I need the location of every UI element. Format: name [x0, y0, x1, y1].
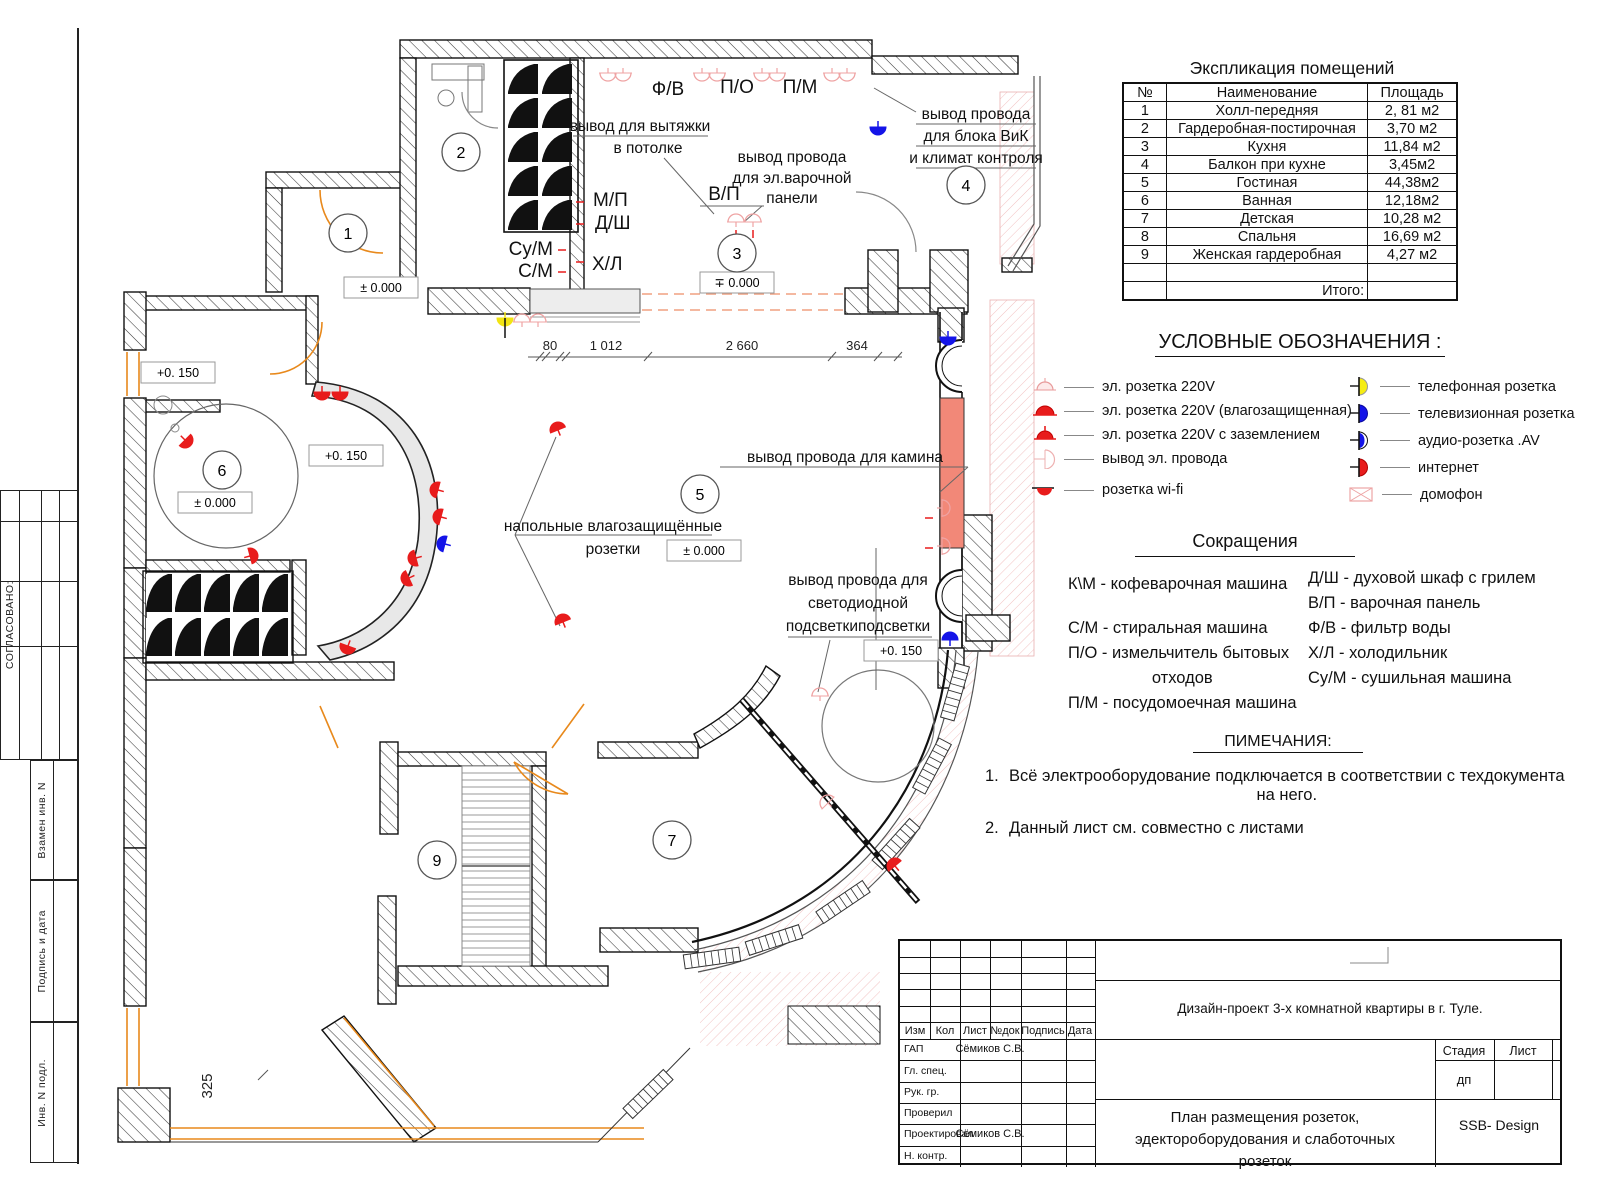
elevation-value: +0. 150 — [325, 449, 367, 463]
abbreviations: Сокращения К\М - кофеварочная машина С/М… — [1040, 531, 1580, 557]
table-row: 2Гардеробная-постирочная3,70 м2 — [1123, 120, 1457, 138]
label-mp: М/П — [593, 190, 628, 211]
label-po: П/О — [720, 77, 754, 98]
annotation-led: подсветкиподсветки — [786, 618, 930, 635]
socket-220v-icon — [1032, 377, 1058, 397]
stamp-label: Подпись и дата — [36, 910, 48, 993]
room-schedule-table: № Наименование Площадь 1Холл-передняя2, … — [1122, 82, 1458, 301]
label-hl: Х/Л — [592, 254, 622, 275]
stamp-cell: Подпись и дата — [30, 880, 78, 1022]
table-row: 5Гостиная44,38м2 — [1123, 174, 1457, 192]
dim-325: 325 — [199, 1073, 216, 1098]
legend-item: аудио-розетка .AV — [1348, 427, 1575, 454]
legend-leader — [1064, 490, 1094, 491]
svg-text:5: 5 — [696, 487, 705, 504]
round-bed — [822, 670, 934, 782]
doc-title: розеток — [1239, 1153, 1292, 1170]
legend-item: эл. розетка 220V с заземлением — [1032, 423, 1352, 447]
bathroom-fixtures — [432, 64, 484, 112]
dim-80: 80 — [543, 338, 557, 353]
notes-title: ПИМЕЧАНИЯ: — [1193, 733, 1363, 753]
col-name: Наименование — [1166, 83, 1367, 102]
abbrev-left-column: К\М - кофеварочная машина С/М - стиральн… — [1068, 575, 1297, 719]
dim-1012: 1 012 — [590, 338, 623, 353]
curved-window-band — [683, 650, 978, 972]
abbrev-item: П/О - измельчитель бытовых — [1068, 644, 1297, 663]
annotation-vik: для блока ВиК — [924, 128, 1029, 145]
annotation-hood: в потолке — [613, 140, 682, 157]
legend-leader — [1064, 459, 1094, 460]
elevation-value: ∓ 0.000 — [714, 276, 759, 290]
room-schedule-title: Экспликация помещений — [1122, 58, 1462, 79]
legend-item: вывод эл. провода — [1032, 447, 1352, 471]
phone-socket — [497, 312, 513, 338]
col-number: № — [1123, 83, 1166, 102]
stage-label: Стадия — [1443, 1044, 1486, 1058]
annotation-led: светодиодной — [808, 595, 908, 612]
total-label: Итого: — [1166, 282, 1367, 301]
room-badge: 6 — [203, 451, 241, 489]
stamp-cell: Взамен инв. N — [30, 760, 78, 880]
table-row: 4Балкон при кухне3,45м2 — [1123, 156, 1457, 174]
room-badge: 1 — [329, 214, 367, 252]
abbrev-item: С/М - стиральная машина — [1068, 619, 1297, 638]
wardrobe-grid-top — [504, 60, 578, 232]
notes: ПИМЕЧАНИЯ: 1. Всё электрооборудование по… — [985, 733, 1599, 838]
room-badge: 9 — [418, 841, 456, 879]
legend-title: УСЛОВНЫЕ ОБОЗНАЧЕНИЯ : — [1155, 331, 1446, 357]
corner-mark-icon — [1340, 945, 1400, 975]
legend-leader — [1380, 386, 1410, 387]
approved-stamp: СОГЛАСОВАНО: — [0, 490, 78, 760]
abbrev-item: Ф/В - фильтр воды — [1308, 619, 1536, 638]
tb-header-list: Лист — [963, 1025, 987, 1037]
legend-leader — [1064, 435, 1094, 436]
table-row: 7Детская10,28 м2 — [1123, 210, 1457, 228]
legend-item: телефонная розетка — [1348, 373, 1575, 400]
legend-item: интернет — [1348, 454, 1575, 481]
svg-text:3: 3 — [733, 246, 742, 263]
legend-item: телевизионная розетка — [1348, 400, 1575, 427]
annotation-vik: вывод провода — [922, 106, 1031, 123]
note-item: 2. Данный лист см. совместно с листами — [985, 819, 1599, 838]
svg-text:7: 7 — [668, 833, 677, 850]
legend-leader — [1064, 411, 1094, 412]
legend-right-column: телефонная розетка телевизионная розетка… — [1348, 373, 1575, 508]
legend-leader — [1380, 440, 1410, 441]
phone-socket-icon — [1348, 376, 1374, 397]
audio-socket-icon — [1348, 430, 1374, 451]
annotation-floor-sockets: розетки — [586, 541, 641, 558]
col-area: Площадь — [1368, 83, 1457, 102]
role-label: Н. контр. — [904, 1150, 947, 1162]
table-row-empty — [1123, 264, 1457, 282]
role-label: Гл. спец. — [904, 1065, 947, 1077]
svg-text:4: 4 — [962, 178, 971, 195]
legend-item: эл. розетка 220V (влагозащищенная) — [1032, 399, 1352, 423]
svg-text:1: 1 — [344, 226, 353, 243]
label-fv: Ф/В — [652, 79, 684, 100]
legend-item: домофон — [1348, 481, 1575, 508]
label-vp: В/П — [708, 184, 740, 205]
tv-socket — [942, 632, 958, 646]
label-sm: С/М — [518, 261, 553, 282]
fireplace-wall — [936, 312, 964, 648]
annotation-hob: вывод провода — [738, 149, 847, 166]
wifi-socket-icon — [1032, 480, 1058, 500]
table-row: 8Спальня16,69 м2 — [1123, 228, 1457, 246]
legend-item: розетка wi-fi — [1032, 478, 1352, 502]
room-badge: 5 — [681, 475, 719, 513]
dim-364: 364 — [846, 338, 868, 353]
abbrev-item: П/М - посудомоечная машина — [1068, 694, 1297, 713]
svg-text:6: 6 — [218, 463, 227, 480]
abbreviations-title: Сокращения — [1135, 531, 1355, 557]
abbrev-item: отходов — [1068, 669, 1297, 688]
legend-leader — [1382, 494, 1412, 495]
room-badge: 7 — [653, 821, 691, 859]
table-row: 9Женская гардеробная4,27 м2 — [1123, 246, 1457, 264]
sheet-label: Лист — [1509, 1044, 1536, 1058]
svg-text:9: 9 — [433, 853, 442, 870]
person-name: Сёмиков С.В. — [955, 1043, 1024, 1055]
annotation-hob: панели — [766, 190, 817, 207]
dim-2660: 2 660 — [726, 338, 759, 353]
doc-title: эдектороборудования и слаботочных — [1135, 1131, 1395, 1148]
approved-label: СОГЛАСОВАНО: — [4, 581, 16, 669]
kitchen-counter — [530, 289, 640, 322]
internet-socket-icon — [1348, 457, 1374, 478]
elevation-value: ± 0.000 — [360, 281, 402, 295]
abbrev-item: Су/М - сушильная машина — [1308, 669, 1536, 688]
wardrobe-rails — [462, 766, 530, 966]
title-block: Изм Кол Лист №док Подпись Дата ГАП Сёмик… — [898, 939, 1562, 1165]
annotation-fireplace: вывод провода для камина — [747, 449, 943, 466]
floor-socket — [548, 420, 568, 439]
annotation-floor-sockets: напольные влагозащищённые — [504, 518, 722, 535]
annotation-led: вывод провода для — [788, 572, 928, 589]
label-sum: Су/М — [509, 239, 553, 260]
annotation-vik: и климат контроля — [909, 150, 1043, 167]
annotation-hob: для эл.варочной — [732, 170, 851, 187]
elevation-value: +0. 150 — [880, 644, 922, 658]
person-name: Сёмиков С.В. — [955, 1128, 1024, 1140]
floor-socket — [553, 612, 573, 631]
door-leaf-room9 — [320, 706, 338, 748]
door-leaf-room7 — [552, 704, 584, 748]
table-row: 1Холл-передняя2, 81 м2 — [1123, 102, 1457, 120]
role-label: Рук. гр. — [904, 1086, 939, 1098]
room-badges: 1 2 3 4 5 6 7 9 — [203, 133, 985, 879]
room-schedule: Экспликация помещений № Наименование Пло… — [1122, 58, 1462, 301]
label-dsh: Д/Ш — [595, 213, 631, 234]
wardrobe-grid-left — [143, 571, 293, 663]
legend-left-column: эл. розетка 220V эл. розетка 220V (влаго… — [1032, 375, 1352, 502]
elevation-value: ± 0.000 — [683, 544, 725, 558]
table-header-row: № Наименование Площадь — [1123, 83, 1457, 102]
elevation-value: +0. 150 — [157, 366, 199, 380]
label-pm: П/М — [783, 77, 818, 98]
table-row-total: Итого: — [1123, 282, 1457, 301]
wire-outlet-icon — [1032, 449, 1058, 469]
fireplace — [940, 398, 964, 548]
annotation-hood: вывод для вытяжки — [570, 118, 711, 135]
tb-header-kol: Кол — [936, 1025, 955, 1037]
tv-socket-icon — [1348, 403, 1374, 424]
stamp-cell: Инв. N подл. — [30, 1022, 78, 1163]
stamp-label: Взамен инв. N — [36, 782, 48, 859]
room-badge: 4 — [947, 166, 985, 204]
room-badge: 3 — [718, 234, 756, 272]
elevation-value: ± 0.000 — [194, 496, 236, 510]
dashed-opening — [642, 294, 843, 310]
legend-leader — [1380, 413, 1410, 414]
table-row: 6Ванная12,18м2 — [1123, 192, 1457, 210]
abbrev-item: В/П - варочная панель — [1308, 594, 1536, 613]
legend-leader — [1380, 467, 1410, 468]
tb-header-podpis: Подпись — [1021, 1025, 1065, 1037]
project-title: Дизайн-проект 3-х комнатной квартиры в г… — [1177, 1001, 1482, 1016]
socket-220v-ground-icon — [1032, 425, 1058, 445]
legend-leader — [1064, 387, 1094, 388]
abbrev-item: Д/Ш - духовой шкаф с грилем — [1308, 569, 1536, 588]
tb-header-ndok: №док — [990, 1025, 1019, 1037]
socket-220v-moisture-icon — [1032, 401, 1058, 421]
role-label: Проверил — [904, 1107, 952, 1119]
abbrev-item: К\М - кофеварочная машина — [1068, 575, 1297, 594]
note-item: 1. Всё электрооборудование подключается … — [985, 767, 1599, 805]
abbrev-item: Х/Л - холодильник — [1308, 644, 1536, 663]
doc-title: План размещения розеток, — [1171, 1109, 1360, 1126]
intercom-icon — [1348, 484, 1376, 505]
legend-item: эл. розетка 220V — [1032, 375, 1352, 399]
tv-socket — [435, 534, 453, 553]
legend: УСЛОВНЫЕ ОБОЗНАЧЕНИЯ : эл. розетка 220V … — [1000, 331, 1600, 357]
abbrev-right-column: Д/Ш - духовой шкаф с грилем В/П - варочн… — [1308, 569, 1536, 694]
role-label: ГАП — [904, 1043, 923, 1055]
table-row: 3Кухня11,84 м2 — [1123, 138, 1457, 156]
company-name: SSB- Design — [1459, 1117, 1539, 1133]
stamp-label: Инв. N подл. — [36, 1059, 48, 1127]
room-badge: 2 — [442, 133, 480, 171]
stage-value: дп — [1457, 1072, 1472, 1087]
svg-text:2: 2 — [457, 145, 466, 162]
tv-socket — [870, 121, 886, 135]
tb-header-data: Дата — [1068, 1025, 1092, 1037]
tb-header-izm: Изм — [905, 1025, 926, 1037]
